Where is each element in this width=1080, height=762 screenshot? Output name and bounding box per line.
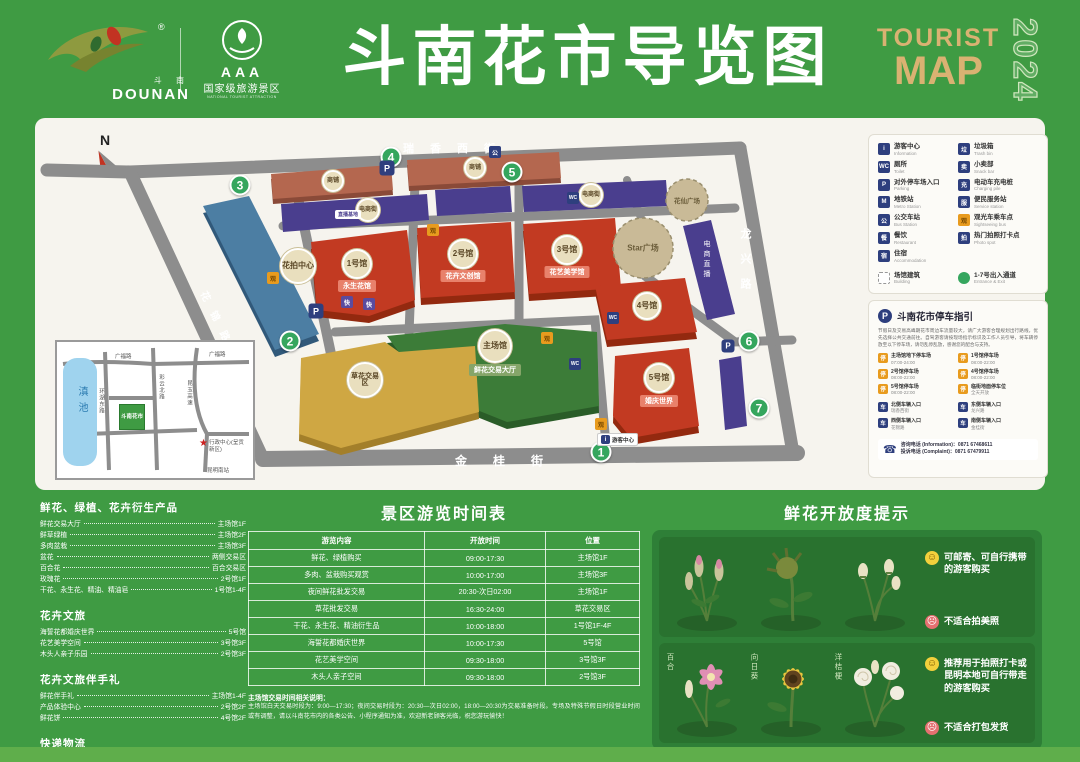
cell: 3号馆3F [546, 652, 640, 669]
building-outline-icon [878, 272, 890, 284]
metro-icon: M [878, 196, 890, 208]
flower-name-sunflower: 向日葵 [749, 653, 760, 682]
cell: 09:30-18:00 [424, 669, 545, 686]
lot-time: 全天开放 [971, 390, 1006, 396]
products-section1-title: 鲜花、绿植、花卉衍生产品 [40, 500, 246, 515]
map-word: MAP [876, 53, 1001, 89]
lot-time: 08:00-22:00 [891, 375, 919, 380]
table-row: 夜间鲜花批发交易20:30-次日02:00主场馆1F [249, 584, 640, 601]
dounan-logo-swoosh-icon: ® [40, 16, 180, 78]
snack-icon: 卖 [958, 161, 970, 173]
item-location: 2号馆2F [221, 702, 246, 713]
legend-en: Trash bin [974, 151, 994, 156]
header-divider [180, 28, 181, 90]
legend-cn: 小卖部 [974, 161, 994, 169]
lot-time: 07:00-24:00 [891, 360, 931, 365]
parking-lot: 停 4号馆停车场08:00-22:00 [958, 369, 1038, 380]
visitor-center-callout: i 游客中心 [597, 433, 638, 446]
item-location: 主场馆3F [218, 541, 246, 552]
legend-service: 服 便民服务站Service station [958, 196, 1038, 209]
legend-en: Sightseeing bus [974, 222, 1013, 227]
flower-openness-section: 鲜花开放度提示 [652, 500, 1042, 750]
cell: 1号馆1F-4F [546, 618, 640, 635]
inset-road-guangfu-right: 广福路 [209, 350, 226, 358]
schedule-note-body: 主场馆白天交易时段为：9:00—17:30；夜间交易时段为：20:30—次日02… [248, 702, 640, 722]
table-row: 多肉、盆栽购买观赏10:00-17:00主场馆3F [249, 567, 640, 584]
freshness-row-buds: ☺ 可邮寄、可自行携带的游客购买 ☹ 不适合拍美照 [659, 537, 1035, 637]
gate-name: 南侧车辆入口 [971, 418, 1001, 424]
cell: 16:30-24:00 [424, 601, 545, 618]
inset-dounan-label: 斗南花市 [121, 414, 143, 421]
vehicle-gate: 车 南侧车辆入口金桂街 [958, 418, 1038, 430]
freshness-title: 鲜花开放度提示 [652, 500, 1042, 524]
legend-cn: 厕所 [894, 161, 907, 169]
parking-icon-north: P [380, 161, 395, 176]
aaa-grade-text: AAA [196, 64, 288, 80]
legend-cn: 便民服务站 [974, 196, 1007, 204]
svg-text:®: ® [158, 22, 165, 32]
legend-column-left: i 游客中心Information WC 厕所Toilet P 对外停车场入口P… [878, 143, 958, 268]
item-location: 主场馆1-4F [212, 691, 246, 702]
lot-time: 08:00-22:00 [891, 390, 919, 395]
vehicle-gate-icon: 车 [878, 418, 888, 428]
legend-en: Bus Station [894, 222, 920, 227]
item-location: 1号馆1-4F [215, 585, 246, 596]
parking-lot-icon: 停 [958, 353, 968, 363]
sightseeing-bus-icon-3: 观 [541, 332, 553, 344]
ecommerce-side-label: 电商直播 [701, 240, 711, 280]
legend-cn: 餐饮 [894, 232, 916, 240]
tip-text: 不适合打包发货 [944, 721, 1008, 733]
badge-hall1: 1号馆 [342, 249, 372, 279]
flower-name-lisianthus: 洋桔梗 [833, 653, 844, 682]
lily-open-illustration [665, 647, 749, 739]
sunflower-bud-illustration [749, 541, 833, 633]
legend-charging: 充 电动车充电桩Charging pile [958, 179, 1038, 192]
phone-icon: ☎ [883, 443, 897, 456]
lot-time: 08:00-22:00 [971, 360, 999, 365]
tourist-map-wordmark: TOURIST MAP [876, 24, 1001, 89]
inset-lake: 滇池 [63, 358, 97, 466]
cell: 10:00-17:00 [424, 567, 545, 584]
list-item: 鲜花交易大厅主场馆1F [40, 519, 246, 530]
cell: 09:30-18:00 [424, 652, 545, 669]
year-label: 2024 [1006, 18, 1044, 103]
lisianthus-buds-illustration [833, 541, 917, 633]
item-name: 玫瑰花 [40, 574, 60, 585]
item-location: 主场馆2F [218, 530, 246, 541]
gate-road: 花锦路 [891, 425, 921, 431]
legend-photo-spot: 拍 热门拍照打卡点Photo spot [958, 232, 1038, 245]
cell: 主场馆3F [546, 567, 640, 584]
item-location: 2号馆1F [221, 574, 246, 585]
aaa-cn-text: 国家级旅游景区 [196, 80, 288, 95]
lisianthus-buds-cell [833, 541, 917, 633]
item-location: 百合交易区 [212, 563, 246, 574]
sightseeing-bus-icon-1: 观 [267, 272, 279, 284]
sunflower-bud-cell [749, 541, 833, 633]
cell: 2号馆3F [546, 669, 640, 686]
info-phone-line: 咨询电话 (Information)：0871 67468611 [901, 442, 993, 450]
street-bottom: 金桂街 [455, 452, 569, 469]
parking-guide-title: 斗南花市停车指引 [897, 309, 973, 323]
badge-hall2: 2号馆 [448, 239, 478, 269]
inset-road-guangfu-left: 广福路 [115, 352, 132, 360]
trash-icon: 垃 [958, 143, 970, 155]
item-name: 干花、永生花、精油、精油皂 [40, 585, 128, 596]
inset-road-caiyun: 彩云北路 [157, 374, 165, 400]
photo-spot-icon: 拍 [958, 232, 970, 244]
lot-name: 主场馆地下停车场 [891, 353, 931, 359]
entrance-circle-icon [958, 272, 970, 284]
dounan-logo: ® 斗 南 DOUNAN [40, 16, 190, 108]
ecommerce-row-label: 直播基地 [335, 210, 361, 219]
legend-cn: 电动车充电桩 [974, 179, 1013, 187]
table-row: 草花批发交易16:30-24:00草花交易区 [249, 601, 640, 618]
aaa-en-text: NATIONAL TOURIST ATTRACTION [196, 95, 288, 99]
express-point-icon-1: 快 [341, 296, 353, 308]
item-name: 鲜花伴手礼 [40, 691, 74, 702]
legend-hotel: 宿 住宿Accommodation [878, 250, 958, 263]
cell: 海誓花都婚庆世界 [249, 635, 425, 652]
legend-en: Charging pile [974, 186, 1013, 191]
cell: 干花、永生花、精油衍生品 [249, 618, 425, 635]
freshness-row-open: 百合 向日葵 [659, 643, 1035, 743]
legend-bus: 公 公交车站Bus Station [878, 214, 958, 227]
parking-lot-list: 停 主场馆地下停车场07:00-24:00 停 1号馆停车场08:00-22:0… [878, 353, 1038, 400]
lisianthus-open-cell: 洋桔梗 [833, 647, 917, 739]
legend-snack: 卖 小卖部Snack bar [958, 161, 1038, 174]
cell: 20:30-次日02:00 [424, 584, 545, 601]
smile-icon: ☺ [925, 551, 939, 565]
gate-name: 西侧车辆入口 [891, 418, 921, 424]
info-icon: i [601, 435, 610, 444]
express-point-icon-2: 快 [363, 298, 375, 310]
service-icon: 服 [958, 196, 970, 208]
legend-cn: 1-7号出入通道 [974, 272, 1016, 280]
inset-dounan-marker: 斗南花市 [119, 404, 145, 430]
toilet-icon: WC [878, 161, 890, 173]
flower-name-lily: 百合 [665, 653, 676, 672]
banner-hall1: 永生花馆 [338, 280, 376, 292]
building-purple-row2 [435, 186, 512, 216]
item-name: 多肉盆栽 [40, 541, 67, 552]
tip-mailable: ☺ 可邮寄、可自行携带的游客购买 [925, 551, 1027, 576]
legend-cn: 地铁站 [894, 196, 921, 204]
site-map-panel: N [35, 118, 1045, 490]
badge-shops-b: 商铺 [464, 157, 486, 179]
sunflower-open-illustration [749, 647, 833, 739]
parking-guide-intro: 节假日及交易高峰期花市周边车流量较大，请广大游客合理规划出行路线，优先选择公共交… [878, 327, 1038, 348]
list-item: 玫瑰花2号馆1F [40, 574, 246, 585]
parking-icon-east: P [722, 340, 735, 353]
table-row: 花艺美学空间09:30-18:003号馆3F [249, 652, 640, 669]
badge-ecommerce-2: 电商街 [579, 183, 603, 207]
legend-toilet: WC 厕所Toilet [878, 161, 958, 174]
schedule-note-title: 主场馆交易时间相关说明： [248, 692, 640, 702]
item-location: 2号馆3F [221, 649, 246, 660]
banner-hall2: 花卉文创馆 [441, 270, 486, 282]
page-title: 斗南花市导览图 [300, 22, 875, 92]
cell: 木头人亲子空间 [249, 669, 425, 686]
item-location: 5号馆 [229, 627, 246, 638]
sunflower-open-cell: 向日葵 [749, 647, 833, 739]
badge-main-hall: 主场馆 [478, 329, 512, 363]
table-row: 木头人亲子空间09:30-18:002号馆3F [249, 669, 640, 686]
legend-cn: 场馆建筑 [894, 272, 920, 280]
open-tips: ☺ 推荐用于拍照打卡或昆明本地可自行带走的游客购买 ☹ 不适合打包发货 [917, 647, 1029, 739]
legend-cn: 对外停车场入口 [894, 179, 940, 187]
service-phone-bar: ☎ 咨询电话 (Information)：0871 67468611 投诉电话 … [878, 439, 1038, 460]
col-header-location: 位置 [546, 532, 640, 550]
legend-en: Photo spot [974, 240, 1020, 245]
legend-en: Restaurant [894, 240, 916, 245]
item-location: 4号馆2F [221, 713, 246, 724]
cell: 多肉、盆栽购买观赏 [249, 567, 425, 584]
legend-cn: 垃圾箱 [974, 143, 994, 151]
badge-hall3: 3号馆 [552, 235, 582, 265]
entrance-7: 7 [749, 398, 770, 419]
entrance-5: 5 [502, 162, 523, 183]
list-item: 木头人亲子乐园2号馆3F [40, 649, 246, 660]
parking-lot-icon: 停 [878, 369, 888, 379]
parking-lot-icon: 停 [958, 384, 968, 394]
legend-en: Accommodation [894, 258, 926, 263]
item-name: 木头人亲子乐园 [40, 649, 88, 660]
logo-en-text: DOUNAN [112, 86, 190, 103]
inset-road-kunyu: 昆玉高速 [185, 380, 193, 406]
parking-lot: 停 临街地面停车位全天开放 [958, 384, 1038, 396]
lot-time: 08:00-22:00 [971, 375, 999, 380]
cell: 10:00-18:00 [424, 618, 545, 635]
badge-hall4: 4号馆 [633, 292, 661, 320]
entrance-6: 6 [739, 331, 760, 352]
aaa-attraction-badge: AAA 国家级旅游景区 NATIONAL TOURIST ATTRACTION [196, 18, 288, 99]
item-name: 鲜花饼 [40, 713, 60, 724]
products-directory: 鲜花、绿植、花卉衍生产品 鲜花交易大厅主场馆1F 鲜草绿植主场馆2F 多肉盆栽主… [40, 500, 246, 762]
legend-en: Building [894, 279, 920, 284]
lily-open-cell: 百合 [665, 647, 749, 739]
item-location: 两侧交易区 [212, 552, 246, 563]
legend-en: Parking [894, 186, 940, 191]
col-header-time: 开放时间 [424, 532, 545, 550]
cell: 夜间鲜花批发交易 [249, 584, 425, 601]
cell: 草花批发交易 [249, 601, 425, 618]
products-section2-title: 花卉文旅 [40, 608, 246, 623]
item-name: 产品体验中心 [40, 702, 81, 713]
list-item: 盆花两侧交易区 [40, 552, 246, 563]
list-item: 多肉盆栽主场馆3F [40, 541, 246, 552]
building-purple-side-small [719, 356, 747, 430]
vehicle-gate: 车 西侧车辆入口花锦路 [878, 418, 958, 430]
legend-parking: P 对外停车场入口Parking [878, 179, 958, 192]
item-name: 鲜花交易大厅 [40, 519, 81, 530]
vehicle-gate-icon: 车 [878, 402, 888, 412]
parking-lot: 停 5号馆停车场08:00-22:00 [878, 384, 958, 396]
freshness-panel: ☺ 可邮寄、可自行携带的游客购买 ☹ 不适合拍美照 百合 [652, 530, 1042, 750]
banner-hall5: 婚庆世界 [640, 395, 678, 407]
sightseeing-bus-icon-4: 观 [595, 418, 607, 430]
visitor-center-label: 游客中心 [612, 436, 634, 444]
parking-lot: 停 1号馆停车场08:00-22:00 [958, 353, 1038, 364]
parking-lot-icon: 停 [878, 384, 888, 394]
street-right: 龙兴路 [737, 228, 753, 303]
item-location: 3号馆3F [221, 638, 246, 649]
map-legend: i 游客中心Information WC 厕所Toilet P 对外停车场入口P… [868, 134, 1048, 294]
restaurant-icon: 餐 [878, 232, 890, 244]
cell: 草花交易区 [546, 601, 640, 618]
parking-icon: P [878, 179, 890, 191]
plaza-small-label: 花仙广场 [674, 195, 700, 205]
cell: 主场馆1F [546, 550, 640, 567]
complaint-phone-line: 投诉电话 (Complaint)：0871 67479911 [901, 449, 993, 457]
list-item: 鲜花饼4号馆2F [40, 713, 246, 724]
parking-guide: P 斗南花市停车指引 节假日及交易高峰期花市周边车流量较大，请广大游客合理规划出… [868, 300, 1048, 478]
tip-photo-recommended: ☺ 推荐用于拍照打卡或昆明本地可自行带走的游客购买 [925, 657, 1027, 694]
toilet-icon-3: WC [569, 358, 581, 370]
item-name: 花艺美学空间 [40, 638, 81, 649]
tip-no-photo: ☹ 不适合拍美照 [925, 615, 1027, 629]
parking-icon: P [878, 309, 892, 323]
banner-main-hall: 鲜花交易大厅 [469, 364, 521, 376]
products-section3-title: 花卉文旅伴手礼 [40, 672, 246, 687]
lot-name: 1号馆停车场 [971, 353, 999, 359]
schedule-table: 游览内容 开放时间 位置 鲜花、绿植购买09:00-17:30主场馆1F 多肉、… [248, 531, 640, 686]
entrance-2: 2 [280, 331, 301, 352]
legend-building: 场馆建筑Building [878, 272, 958, 285]
legend-en: Metro Station [894, 204, 921, 209]
vehicle-gate-icon: 车 [958, 418, 968, 428]
lily-buds-cell [665, 541, 749, 633]
inset-lake-label: 滇池 [74, 386, 89, 418]
lily-buds-illustration [665, 541, 749, 633]
entrance-3: 3 [230, 175, 251, 196]
vehicle-gate: 车 东侧车辆入口龙兴路 [958, 402, 1038, 414]
sightseeing-icon: 观 [958, 214, 970, 226]
banner-hall3: 花艺美学馆 [545, 266, 590, 278]
vicinity-inset-map: 滇池 广福路 广福路 环湖东路 彩云北路 昆玉高速 斗南花市 ★ 行政中心(呈贡… [55, 340, 255, 480]
legend-en: Toilet [894, 169, 907, 174]
legend-restaurant: 餐 餐饮Restaurant [878, 232, 958, 245]
cell: 09:00-17:30 [424, 550, 545, 567]
item-name: 鲜草绿植 [40, 530, 67, 541]
legend-cn: 公交车站 [894, 214, 920, 222]
gate-road: 龙兴路 [971, 408, 1001, 414]
schedule-section: 景区游览时间表 游览内容 开放时间 位置 鲜花、绿植购买09:00-17:30主… [248, 500, 640, 722]
inset-road-huanhu: 环湖东路 [97, 388, 105, 414]
parking-lot-icon: 停 [958, 369, 968, 379]
sightseeing-bus-icon-2: 观 [427, 224, 439, 236]
legend-metro: M 地铁站Metro Station [878, 196, 958, 209]
legend-en: Information [894, 151, 920, 156]
table-row: 干花、永生花、精油衍生品10:00-18:001号馆1F-4F [249, 618, 640, 635]
bus-icon: 公 [878, 214, 890, 226]
toilet-icon-1: WC [567, 192, 579, 204]
cell: 10:00-17:30 [424, 635, 545, 652]
hotel-icon: 宿 [878, 250, 890, 262]
sad-icon: ☹ [925, 721, 939, 735]
legend-en: Service station [974, 204, 1007, 209]
poster-bottom-strip [0, 747, 1080, 762]
tip-text: 推荐用于拍照打卡或昆明本地可自行带走的游客购买 [944, 657, 1027, 694]
legend-entrance: 1-7号出入通道Entrance & Exit [958, 272, 1038, 285]
plaza-star-label: Star广场 [627, 243, 659, 254]
list-item: 鲜花伴手礼主场馆1-4F [40, 691, 246, 702]
cell: 花艺美学空间 [249, 652, 425, 669]
cell: 主场馆1F [546, 584, 640, 601]
vehicle-gate-icon: 车 [958, 402, 968, 412]
smile-icon: ☺ [925, 657, 939, 671]
item-location: 主场馆1F [218, 519, 246, 530]
legend-cn: 热门拍照打卡点 [974, 232, 1020, 240]
list-item: 花艺美学空间3号馆3F [40, 638, 246, 649]
list-item: 产品体验中心2号馆2F [40, 702, 246, 713]
inset-star-label: 行政中心(呈贡新区) [209, 440, 249, 454]
legend-cn: 观光车乘车点 [974, 214, 1013, 222]
dounan-flower-market-tourist-map-poster: ® 斗 南 DOUNAN AAA 国家级旅游景区 NATIONAL TOURIS… [0, 0, 1080, 762]
list-item: 干花、永生花、精油、精油皂1号馆1-4F [40, 585, 246, 596]
schedule-title: 景区游览时间表 [248, 500, 640, 524]
list-item: 百合花百合交易区 [40, 563, 246, 574]
legend-trash: 垃 垃圾箱Trash bin [958, 143, 1038, 156]
vehicle-gate-list: 车 北侧车辆入口瑞香西街 车 东侧车辆入口龙兴路 车 西侧车辆入口花锦路 车 南… [878, 402, 1038, 435]
sad-icon: ☹ [925, 615, 939, 629]
gate-road: 金桂街 [971, 425, 1001, 431]
tip-no-shipping: ☹ 不适合打包发货 [925, 721, 1027, 735]
table-row: 海誓花都婚庆世界10:00-17:305号馆 [249, 635, 640, 652]
col-header-content: 游览内容 [249, 532, 425, 550]
bus-stop-icon: 公 [489, 146, 501, 158]
legend-en: Snack bar [974, 169, 994, 174]
cell: 5号馆 [546, 635, 640, 652]
legend-column-right: 垃 垃圾箱Trash bin 卖 小卖部Snack bar 充 电动车充电桩Ch… [958, 143, 1038, 268]
aaa-emblem-icon [220, 18, 264, 62]
parking-lot-icon: 停 [878, 353, 888, 363]
badge-auction-center: 花拍中心 [280, 248, 316, 284]
parking-lot: 停 2号馆停车场08:00-22:00 [878, 369, 958, 380]
table-row: 鲜花、绿植购买09:00-17:30主场馆1F [249, 550, 640, 567]
badge-grass-flower-zone: 草花交易区 [347, 362, 383, 398]
tip-text: 不适合拍美照 [944, 615, 999, 627]
legend-sightseeing: 观 观光车乘车点Sightseeing bus [958, 214, 1038, 227]
building-yellow-grass-flower-zone [299, 342, 479, 455]
item-name: 百合花 [40, 563, 60, 574]
table-header-row: 游览内容 开放时间 位置 [249, 532, 640, 550]
charging-icon: 充 [958, 179, 970, 191]
badge-hall5: 5号馆 [644, 363, 674, 393]
badge-shops-a: 商铺 [322, 170, 344, 192]
parking-icon-west: P [309, 304, 324, 319]
tip-text: 可邮寄、可自行携带的游客购买 [944, 551, 1027, 576]
legend-cn: 住宿 [894, 250, 926, 258]
buds-tips: ☺ 可邮寄、可自行携带的游客购买 ☹ 不适合拍美照 [917, 541, 1029, 633]
inset-star-icon: ★ [199, 438, 208, 449]
legend-visitor-center: i 游客中心Information [878, 143, 958, 156]
list-item: 鲜草绿植主场馆2F [40, 530, 246, 541]
legend-en: Entrance & Exit [974, 279, 1016, 284]
info-icon: i [878, 143, 890, 155]
parking-lot: 停 主场馆地下停车场07:00-24:00 [878, 353, 958, 364]
gate-road: 瑞香西街 [891, 408, 921, 414]
item-name: 盆花 [40, 552, 54, 563]
legend-cn: 游客中心 [894, 143, 920, 151]
lot-name: 4号馆停车场 [971, 369, 999, 375]
toilet-icon-2: WC [607, 312, 619, 324]
vehicle-gate: 车 北侧车辆入口瑞香西街 [878, 402, 958, 414]
item-name: 海誓花都婚庆世界 [40, 627, 94, 638]
inset-station-label: 昆明南站 [207, 466, 229, 474]
list-item: 海誓花都婚庆世界5号馆 [40, 627, 246, 638]
